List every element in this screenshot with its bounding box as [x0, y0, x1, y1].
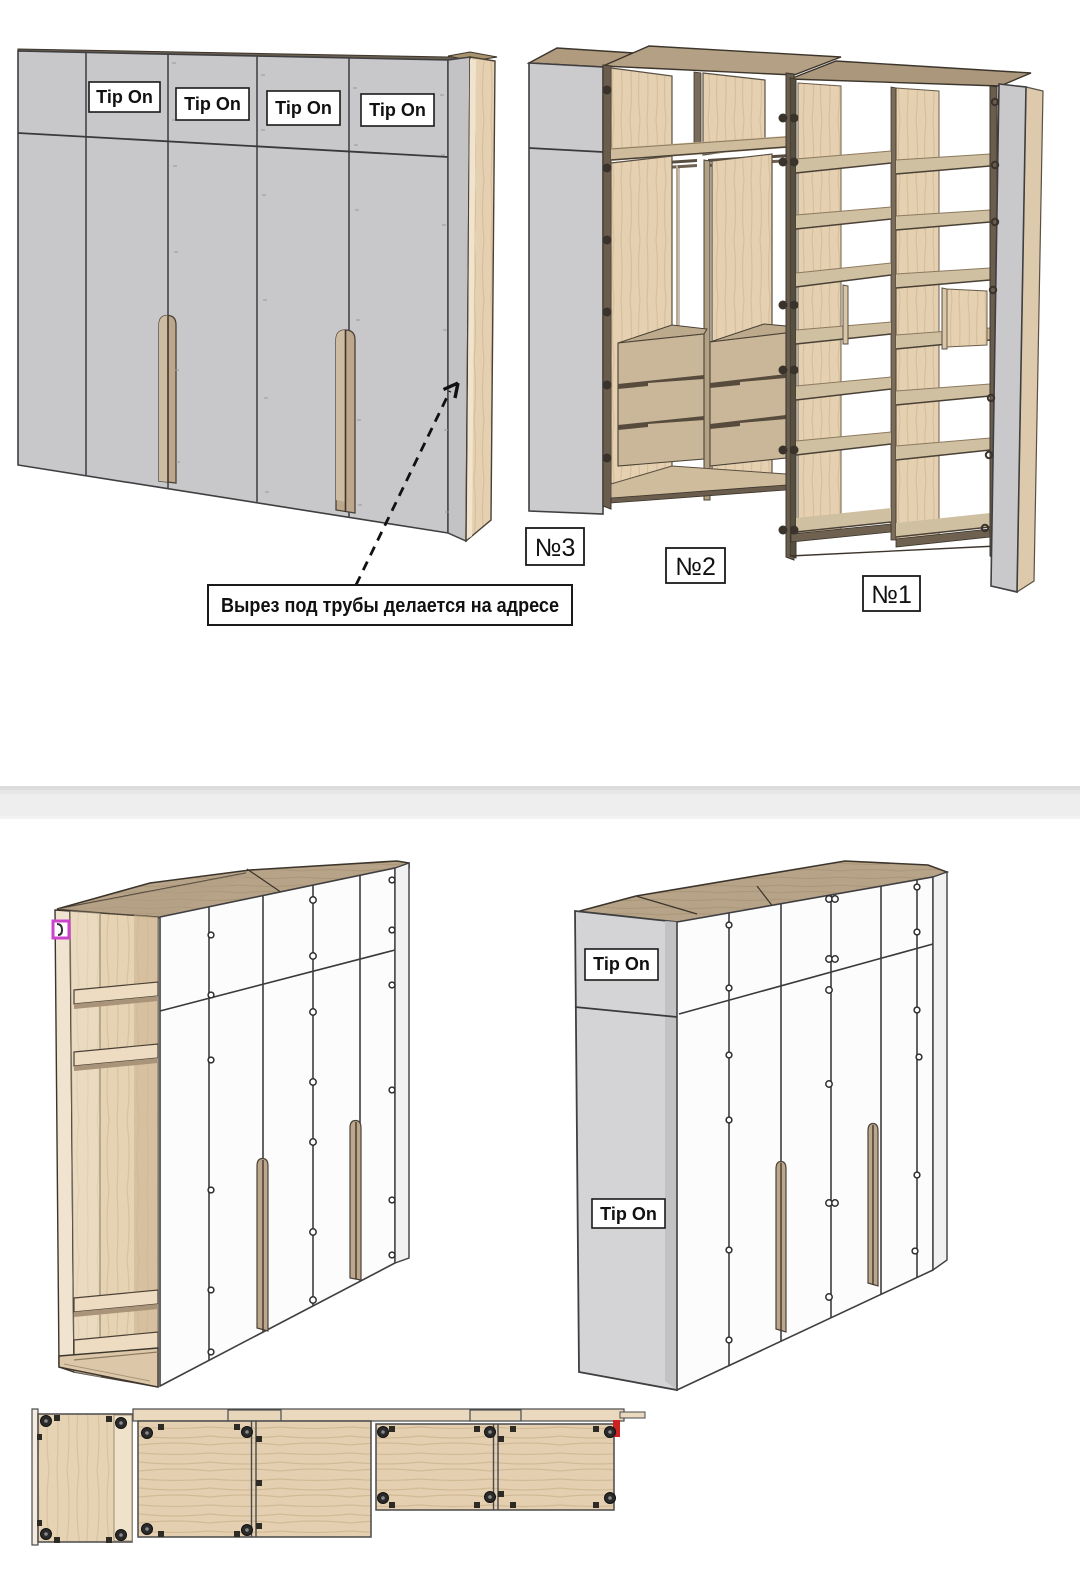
svg-text:Tip On: Tip On — [369, 100, 426, 120]
svg-text:Tip On: Tip On — [600, 1204, 657, 1224]
svg-text:№2: №2 — [675, 553, 716, 581]
svg-text:Вырез под трубы делается на ад: Вырез под трубы делается на адресе — [221, 595, 559, 617]
svg-text:№3: №3 — [535, 534, 576, 562]
svg-text:Tip On: Tip On — [593, 954, 650, 974]
svg-text:Tip On: Tip On — [184, 94, 241, 114]
svg-text:Tip On: Tip On — [275, 98, 332, 118]
svg-text:Tip On: Tip On — [96, 87, 153, 107]
svg-text:№1: №1 — [871, 581, 912, 609]
